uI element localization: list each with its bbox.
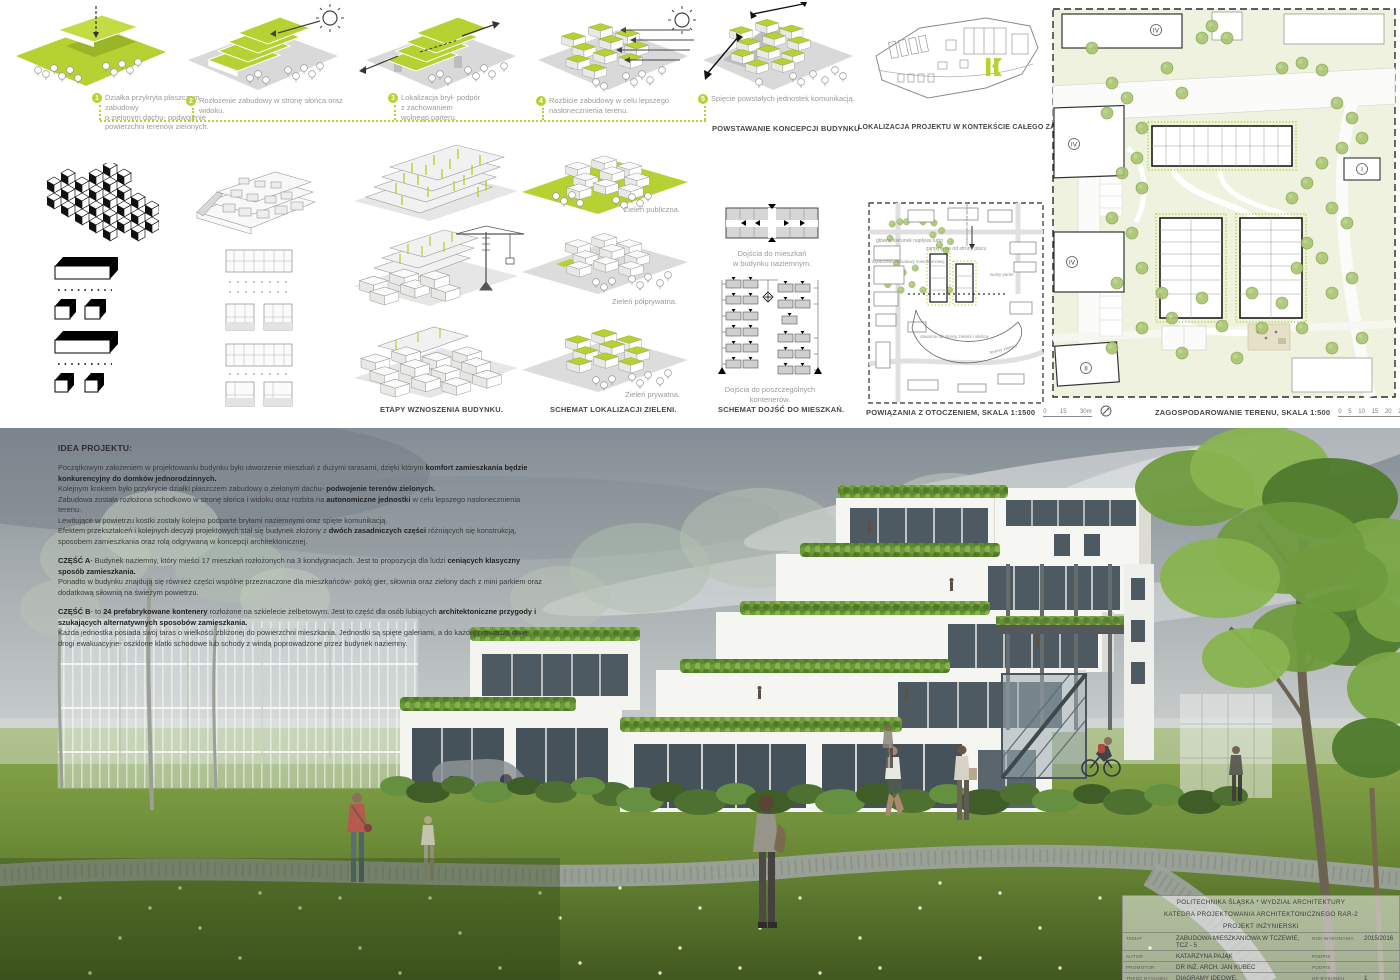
title-block-row-promotor: PROMOTOR DR INŻ. ARCH. JAN KUBEC PODPIS bbox=[1123, 961, 1399, 972]
surroundings-caption-row: POWIĄZANIA Z OTOCZENIEM, SKALA 1:1500 0 … bbox=[866, 405, 1112, 417]
access-label: SCHEMAT DOJŚĆ DO MIESZKAŃ. bbox=[718, 405, 844, 414]
concept-step-5-caption: 5 Spięcie powstałych jednostek komunikac… bbox=[698, 94, 858, 104]
surroundings-label: POWIĄZANIA Z OTOCZENIEM, SKALA 1:1500 bbox=[866, 408, 1035, 417]
idea-title: IDEA PROJEKTU: bbox=[58, 443, 544, 453]
stages-label: ETAPY WZNOSZENIA BUDYNKU. bbox=[380, 405, 503, 414]
surroundings-scalebar: 0 15 30m bbox=[1043, 409, 1091, 417]
sun-icon bbox=[316, 4, 344, 32]
access-scheme-containers bbox=[716, 272, 826, 384]
concept-step-2-caption: 2 Rozłożenie zabudowy w stronę słońca or… bbox=[186, 96, 356, 116]
white-boxes bbox=[565, 156, 649, 200]
site-plan: P4 bbox=[1052, 8, 1396, 398]
step-number-badge: 2 bbox=[186, 96, 196, 106]
bar-1 bbox=[55, 257, 118, 279]
massing-axon-detailed bbox=[193, 166, 325, 246]
container-cluster bbox=[361, 347, 501, 397]
title-block: POLITECHNIKA ŚLĄSKA * WYDZIAŁ ARCHITEKTU… bbox=[1122, 895, 1400, 980]
elevation-bars-bw bbox=[52, 250, 124, 404]
svg-text:zamknięcie od strony placu: zamknięcie od strony placu bbox=[926, 246, 987, 252]
concept-flow-label: POWSTAWANIE KONCEPCJI BUDYNKU bbox=[712, 124, 860, 133]
idea-paragraphs: Początkowym założeniem w projektowaniu b… bbox=[58, 463, 544, 649]
title-block-department: KATEDRA PROJEKTOWANIA ARCHITEKTONICZNEGO… bbox=[1123, 908, 1399, 920]
north-compass-icon bbox=[1100, 405, 1112, 417]
svg-text:wolny parter: wolny parter bbox=[990, 272, 1014, 277]
access-caption-2: Dojścia do poszczególnych kontenerów. bbox=[714, 385, 826, 405]
access-caption-1: Dojścia do mieszkań w budynku naziemnym. bbox=[716, 249, 828, 269]
concept-step-5-diagram bbox=[695, 2, 860, 92]
architectural-rendering: IDEA PROJEKTU: Początkowym założeniem w … bbox=[0, 428, 1400, 980]
siteplan-caption-row: ZAGOSPODAROWANIE TERENU, SKALA 1:500 0 5… bbox=[1155, 405, 1400, 417]
svg-text:główny kierunek napływu ludzi: główny kierunek napływu ludzi bbox=[876, 238, 943, 244]
concept-step-1-diagram bbox=[8, 4, 173, 92]
concept-step-2-diagram bbox=[180, 4, 350, 92]
greenery-private bbox=[520, 320, 692, 394]
stage-2-crane bbox=[352, 224, 532, 310]
step-number-badge: 3 bbox=[388, 93, 398, 103]
greenery-semiprivate bbox=[520, 224, 692, 296]
title-block-row-tresc: TREŚĆ RYSUNKU DIAGRAMY IDEOWE, ZAGOSPODA… bbox=[1123, 972, 1399, 980]
lift-diamond bbox=[763, 292, 773, 302]
title-block-row-temat: TEMAT ZABUDOWA MIESZKANIOWA W TCZEWIE, T… bbox=[1123, 932, 1399, 950]
context-map-label: LOKALIZACJA PROJEKTU W KONTEKŚCIE CAŁEGO… bbox=[858, 124, 1054, 131]
svg-text:IV: IV bbox=[1153, 28, 1160, 35]
concept-step-3-diagram bbox=[358, 4, 528, 92]
greenery-public-label: Zieleń publiczna. bbox=[560, 205, 680, 214]
siteplan-label: ZAGOSPODAROWANIE TERENU, SKALA 1:500 bbox=[1155, 408, 1330, 417]
stage-1-skeleton bbox=[352, 143, 524, 221]
cubes-row-1 bbox=[55, 299, 106, 319]
concept-step-4-diagram bbox=[530, 4, 705, 92]
title-block-project-type: PROJEKT INŻYNIERSKI bbox=[1123, 920, 1399, 932]
concept-step-3-caption: 3 Lokalizacja brył- podpór z zachowaniem… bbox=[388, 93, 508, 122]
cubes-row-2 bbox=[55, 373, 104, 392]
access-plan-building-a bbox=[720, 203, 825, 247]
step-number-badge: 1 bbox=[92, 93, 102, 103]
background-right-building bbox=[1180, 694, 1272, 798]
stage-3-complete bbox=[352, 318, 524, 402]
svg-text:otwarcie od strony zieleni i s: otwarcie od strony zieleni i słońca bbox=[920, 334, 989, 339]
foreground-grass-shade bbox=[0, 858, 560, 980]
mini-floorplans bbox=[222, 248, 298, 408]
presentation-board: 1 Działka przykryta płaszczem zabudowy o… bbox=[0, 0, 1400, 980]
bar-2 bbox=[55, 331, 118, 353]
svg-text:sąsiedztwo zabudowy mieszkanio: sąsiedztwo zabudowy mieszkaniowej bbox=[872, 259, 945, 264]
greenery-private-label: Zieleń prywatna. bbox=[560, 390, 680, 399]
green-roof-boxes bbox=[565, 329, 649, 373]
glass-staircase bbox=[1002, 674, 1086, 778]
title-block-row-autor: AUTOR KATARZYNA PAJĄK PODPIS bbox=[1123, 950, 1399, 961]
surroundings-plan: główny kierunek napływu ludzi zamknięcie… bbox=[868, 202, 1044, 404]
flow-dotted-line bbox=[100, 120, 706, 122]
step-number-badge: 4 bbox=[536, 96, 546, 106]
svg-text:IV: IV bbox=[1071, 142, 1078, 149]
diagram-board: 1 Działka przykryta płaszczem zabudowy o… bbox=[0, 0, 1400, 428]
white-boxes bbox=[565, 233, 649, 277]
concept-step-4-caption: 4 Rozbicie zabudowy w celu lepszego nasł… bbox=[536, 96, 701, 116]
massing-axon-bw bbox=[35, 163, 159, 255]
siteplan-scalebar: 0 5 10 15 20 25m bbox=[1338, 409, 1400, 417]
idea-text-block: IDEA PROJEKTU: Początkowym założeniem w … bbox=[58, 443, 544, 649]
step-number-badge: 5 bbox=[698, 94, 708, 104]
context-map bbox=[868, 12, 1044, 114]
svg-text:II: II bbox=[1084, 366, 1088, 373]
greenery-label: SCHEMAT LOKALIZACJI ZIELENI. bbox=[550, 405, 677, 414]
svg-text:IV: IV bbox=[1069, 260, 1076, 267]
svg-text:lokalizacja na osi widokowej p: lokalizacja na osi widokowej placu bbox=[964, 202, 969, 246]
greenery-semiprivate-label: Zieleń półprywatna. bbox=[557, 297, 677, 306]
svg-text:I: I bbox=[1361, 167, 1363, 174]
title-block-university: POLITECHNIKA ŚLĄSKA * WYDZIAŁ ARCHITEKTU… bbox=[1123, 896, 1399, 908]
